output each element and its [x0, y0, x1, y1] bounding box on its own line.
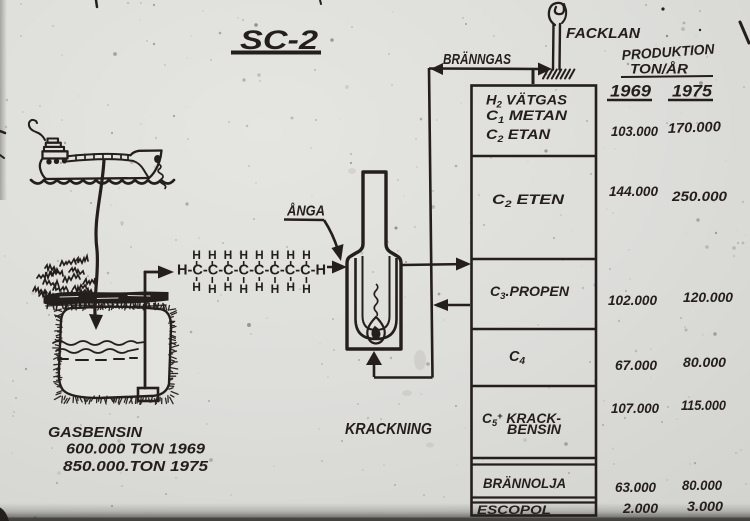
svg-text:H: H — [192, 280, 201, 294]
svg-text:BENSIN: BENSIN — [507, 422, 561, 437]
svg-text:BRÄNNOLJA: BRÄNNOLJA — [483, 475, 566, 491]
svg-text:H: H — [271, 248, 280, 262]
svg-text:67.000: 67.000 — [615, 357, 657, 373]
svg-text:H: H — [286, 248, 295, 262]
svg-text:TON/ÅR: TON/ÅR — [630, 62, 688, 77]
svg-text:80.000: 80.000 — [682, 477, 722, 493]
svg-text:103.000: 103.000 — [611, 123, 658, 139]
svg-text:1969: 1969 — [610, 83, 652, 101]
svg-text:120.000: 120.000 — [683, 289, 733, 305]
svg-text:H: H — [255, 280, 264, 294]
svg-text:FACKLAN: FACKLAN — [566, 25, 641, 42]
svg-text:80.000: 80.000 — [683, 354, 726, 370]
svg-text:63.000: 63.000 — [615, 479, 656, 495]
svg-text:H: H — [302, 282, 311, 296]
svg-text:ESCOPOL: ESCOPOL — [477, 503, 551, 517]
svg-text:170.000: 170.000 — [668, 118, 722, 136]
svg-text:BRÄNNGAS: BRÄNNGAS — [443, 51, 511, 68]
svg-text:115.000: 115.000 — [681, 397, 726, 413]
svg-text:144.000: 144.000 — [609, 183, 658, 199]
svg-text:C2 ETAN: C2 ETAN — [486, 127, 550, 144]
svg-text:H: H — [302, 248, 311, 262]
svg-text:H: H — [239, 248, 248, 262]
svg-text:600.000 TON 1969: 600.000 TON 1969 — [66, 441, 206, 458]
svg-text:2.000: 2.000 — [622, 500, 658, 516]
svg-text:H: H — [255, 248, 264, 262]
svg-text:KRACKNING: KRACKNING — [345, 421, 432, 438]
svg-text:H: H — [286, 280, 295, 294]
svg-text:H: H — [192, 248, 201, 262]
svg-text:H: H — [208, 248, 217, 262]
svg-text:ÅNGA: ÅNGA — [286, 203, 325, 220]
svg-text:H: H — [224, 280, 233, 294]
svg-text:H: H — [224, 248, 233, 262]
svg-text:H: H — [208, 282, 217, 296]
svg-text:H: H — [271, 282, 280, 296]
svg-text:850.000.TON 1975: 850.000.TON 1975 — [63, 458, 209, 475]
svg-text:H-C-C-C-C-C-C-C-C-H: H-C-C-C-C-C-C-C-C-H — [177, 263, 326, 279]
svg-text:3.000: 3.000 — [687, 498, 723, 514]
svg-text:1975: 1975 — [672, 83, 713, 101]
svg-text:250.000: 250.000 — [671, 188, 727, 204]
svg-text:102.000: 102.000 — [608, 292, 657, 308]
svg-text:H: H — [239, 282, 248, 296]
svg-text:107.000: 107.000 — [611, 400, 659, 416]
svg-text:GASBENSIN: GASBENSIN — [48, 424, 143, 441]
